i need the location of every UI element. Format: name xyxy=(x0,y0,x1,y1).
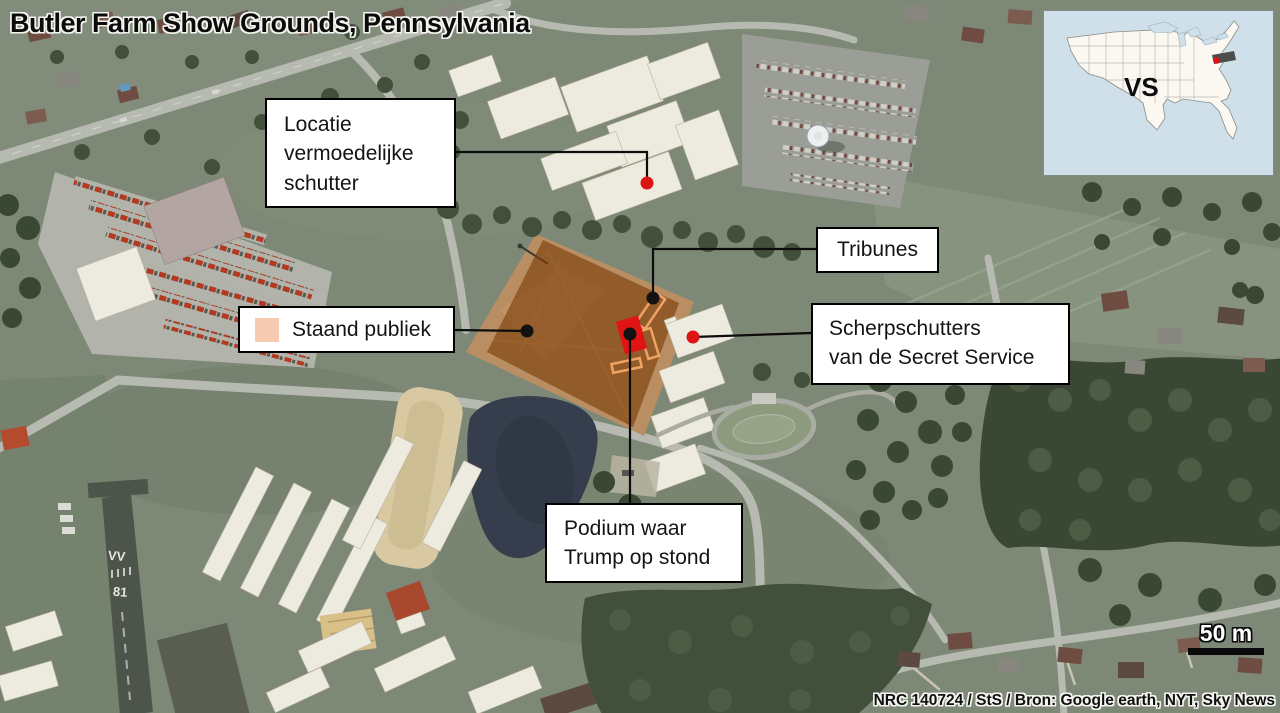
scale-bar: 50 m xyxy=(1188,620,1264,655)
label-box-scherpschutters: Scherpschutters van de Secret Service xyxy=(811,303,1070,385)
inset-country-label: VS xyxy=(1124,72,1159,102)
marker-shooter-dot xyxy=(641,177,654,190)
scale-bar-rule xyxy=(1188,648,1264,655)
connector-tribunes xyxy=(653,249,816,298)
connector-scherpschutters xyxy=(693,333,811,337)
label-line: vermoedelijke xyxy=(284,139,454,168)
infographic: VV 81 xyxy=(0,0,1280,713)
marker-staand-publiek-dot xyxy=(521,325,534,338)
label-line: Trump op stond xyxy=(564,543,741,572)
marker-scherpschutters-dot xyxy=(687,331,700,344)
label-line: Scherpschutters xyxy=(829,314,1068,343)
connector-shooter xyxy=(456,152,647,183)
label-box-tribunes: Tribunes xyxy=(816,227,939,273)
marker-podium-dot xyxy=(624,328,637,341)
label-line: van de Secret Service xyxy=(829,343,1068,372)
usa-map: VS xyxy=(1044,11,1273,175)
scale-bar-label: 50 m xyxy=(1188,620,1264,647)
label-box-staand-publiek: Staand publiek xyxy=(238,306,455,353)
label-box-podium: Podium waar Trump op stond xyxy=(545,503,743,583)
label-line: Locatie xyxy=(284,110,454,139)
inset-map: VS xyxy=(1043,10,1274,176)
credit-text: NRC 140724 / StS / Bron: Google earth, N… xyxy=(874,692,1275,710)
label-line: schutter xyxy=(284,169,454,198)
label-line: Tribunes xyxy=(837,235,918,264)
inset-location-dot xyxy=(1213,57,1220,64)
legend-swatch xyxy=(255,318,279,342)
label-box-shooter: Locatie vermoedelijke schutter xyxy=(265,98,456,208)
marker-tribunes-dot xyxy=(647,292,660,305)
label-line: Staand publiek xyxy=(292,315,431,344)
page-title: Butler Farm Show Grounds, Pennsylvania xyxy=(10,8,530,39)
label-line: Podium waar xyxy=(564,514,741,543)
connector-staand-publiek xyxy=(455,330,527,331)
